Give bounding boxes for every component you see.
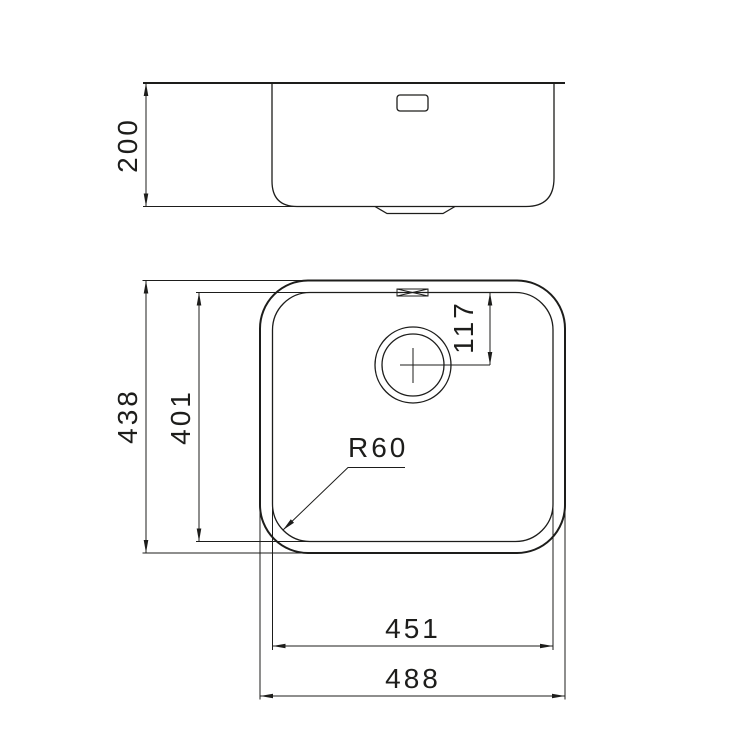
sink-technical-drawing: 200 117 bbox=[0, 0, 747, 747]
dimension-overall-height: 438 bbox=[112, 281, 148, 554]
arrow-left-icon bbox=[260, 694, 273, 699]
side-overflow-opening bbox=[397, 95, 428, 111]
corner-radius-label: R60 bbox=[348, 432, 408, 463]
drawing-canvas: 200 117 bbox=[0, 0, 747, 747]
arrow-left-icon bbox=[273, 644, 286, 649]
arrow-down-icon bbox=[488, 352, 493, 365]
dimension-bowl-width-label: 451 bbox=[385, 613, 441, 644]
dimension-bowl-width: 451 bbox=[273, 613, 554, 648]
arrow-up-icon bbox=[144, 281, 149, 294]
dimension-depth-label: 200 bbox=[112, 117, 143, 173]
arrow-down-icon bbox=[144, 194, 149, 207]
dimension-overall-width-label: 488 bbox=[385, 663, 441, 694]
dimension-drain-offset: 117 bbox=[448, 293, 492, 366]
side-view: 200 bbox=[112, 83, 565, 214]
dimension-bowl-height: 401 bbox=[165, 293, 201, 542]
arrow-down-icon bbox=[197, 529, 202, 542]
front-inner-bowl bbox=[273, 293, 554, 542]
dimension-bowl-height-label: 401 bbox=[165, 389, 196, 445]
arrow-right-icon bbox=[540, 644, 553, 649]
arrow-up-icon bbox=[197, 293, 202, 306]
side-drain-fitting bbox=[375, 207, 455, 214]
arrow-down-icon bbox=[144, 540, 149, 553]
dimension-overall-height-label: 438 bbox=[112, 388, 143, 444]
side-bowl-outline bbox=[272, 83, 554, 207]
front-view: 117 438 401 R60 bbox=[112, 281, 565, 700]
dimension-drain-offset-label: 117 bbox=[448, 300, 479, 354]
arrow-up-icon bbox=[144, 83, 149, 96]
dimension-depth: 200 bbox=[112, 83, 148, 207]
corner-radius-leader-line bbox=[283, 468, 405, 531]
arrow-up-icon bbox=[488, 293, 493, 306]
front-outer-rim bbox=[260, 281, 565, 554]
callout-corner-radius: R60 bbox=[283, 432, 408, 530]
arrow-right-icon bbox=[552, 694, 565, 699]
dimension-overall-width: 488 bbox=[260, 663, 565, 698]
